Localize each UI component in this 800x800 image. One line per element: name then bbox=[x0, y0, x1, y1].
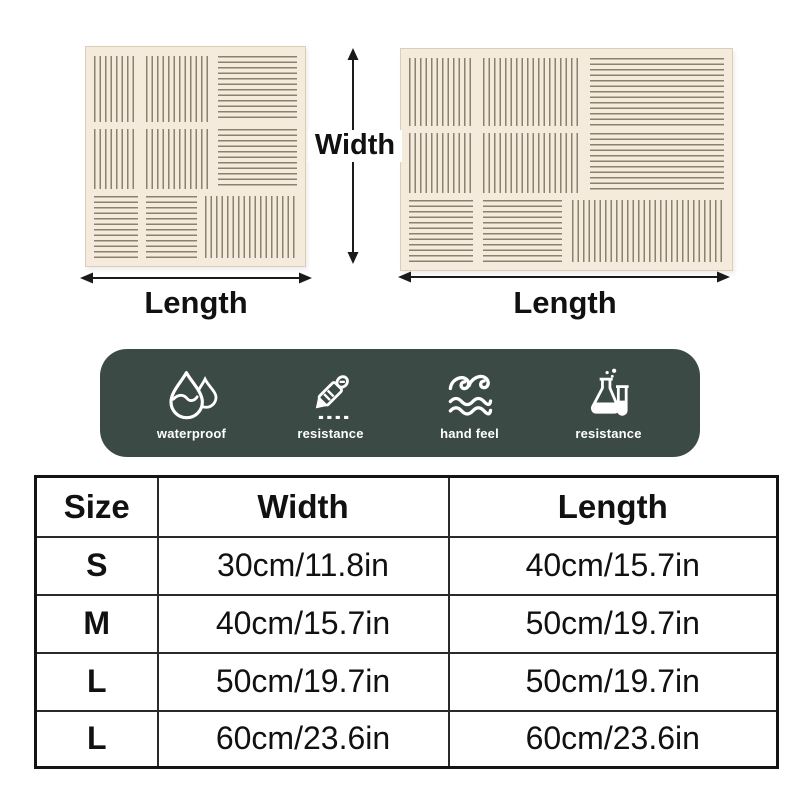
stripe-block bbox=[409, 58, 473, 126]
mat-row bbox=[409, 200, 724, 262]
width-dimension-label: Width bbox=[308, 130, 402, 162]
waterproof-drop-icon bbox=[164, 366, 220, 424]
width-cell: 30cm/11.8in bbox=[158, 537, 449, 595]
mat-row bbox=[94, 196, 297, 258]
width-cell: 60cm/23.6in bbox=[158, 711, 449, 768]
stripe-block bbox=[483, 58, 580, 126]
placemat-small-diagram bbox=[85, 46, 306, 267]
stripe-block bbox=[218, 129, 297, 189]
stripe-block bbox=[146, 129, 210, 189]
col-header-size: Size bbox=[36, 477, 158, 537]
stripe-block bbox=[94, 196, 138, 258]
length-arrow-left bbox=[80, 272, 312, 284]
feature-waterproof: waterproof bbox=[122, 366, 261, 441]
product-infographic: Width Length Length waterproof bbox=[0, 0, 800, 800]
stripe-block bbox=[590, 133, 724, 193]
stripe-block bbox=[205, 196, 297, 258]
table-row: M 40cm/15.7in 50cm/19.7in bbox=[36, 595, 778, 653]
feature-label: resistance bbox=[297, 426, 363, 441]
size-cell: L bbox=[36, 711, 158, 768]
chemical-flask-icon bbox=[581, 366, 637, 424]
size-cell: S bbox=[36, 537, 158, 595]
size-cell: M bbox=[36, 595, 158, 653]
width-cell: 50cm/19.7in bbox=[158, 653, 449, 711]
cutter-knife-icon bbox=[303, 366, 359, 424]
stripe-block bbox=[218, 56, 297, 122]
table-row: L 50cm/19.7in 50cm/19.7in bbox=[36, 653, 778, 711]
size-table: Size Width Length S 30cm/11.8in 40cm/15.… bbox=[34, 475, 779, 769]
mat-row bbox=[409, 133, 724, 193]
mat-row bbox=[94, 56, 297, 122]
table-row: S 30cm/11.8in 40cm/15.7in bbox=[36, 537, 778, 595]
stripe-block bbox=[409, 133, 473, 193]
length-cell: 40cm/15.7in bbox=[449, 537, 778, 595]
length-cell: 60cm/23.6in bbox=[449, 711, 778, 768]
length-dimension-label-right: Length bbox=[483, 286, 647, 320]
stripe-block bbox=[409, 200, 473, 262]
mat-row bbox=[409, 58, 724, 126]
length-arrow-right bbox=[398, 271, 730, 283]
stripe-block bbox=[146, 56, 210, 122]
feature-label: resistance bbox=[575, 426, 641, 441]
length-dimension-label-left: Length bbox=[116, 286, 276, 320]
stripe-block bbox=[590, 58, 724, 126]
table-row: L 60cm/23.6in 60cm/23.6in bbox=[36, 711, 778, 768]
stripe-block bbox=[572, 200, 724, 262]
feature-hand-feel: hand feel bbox=[400, 366, 539, 441]
mat-row bbox=[94, 129, 297, 189]
table-header-row: Size Width Length bbox=[36, 477, 778, 537]
feature-chemical-resistance: resistance bbox=[539, 366, 678, 441]
stripe-block bbox=[483, 133, 580, 193]
col-header-width: Width bbox=[158, 477, 449, 537]
col-header-length: Length bbox=[449, 477, 778, 537]
length-cell: 50cm/19.7in bbox=[449, 653, 778, 711]
width-cell: 40cm/15.7in bbox=[158, 595, 449, 653]
stripe-block bbox=[483, 200, 562, 262]
size-cell: L bbox=[36, 653, 158, 711]
wave-icon bbox=[442, 366, 498, 424]
feature-cut-resistance: resistance bbox=[261, 366, 400, 441]
feature-label: waterproof bbox=[157, 426, 226, 441]
features-banner: waterproof resi bbox=[100, 349, 700, 457]
placemat-large-diagram bbox=[400, 48, 733, 271]
stripe-block bbox=[94, 129, 138, 189]
feature-label: hand feel bbox=[440, 426, 499, 441]
stripe-block bbox=[94, 56, 138, 122]
stripe-block bbox=[146, 196, 197, 258]
length-cell: 50cm/19.7in bbox=[449, 595, 778, 653]
